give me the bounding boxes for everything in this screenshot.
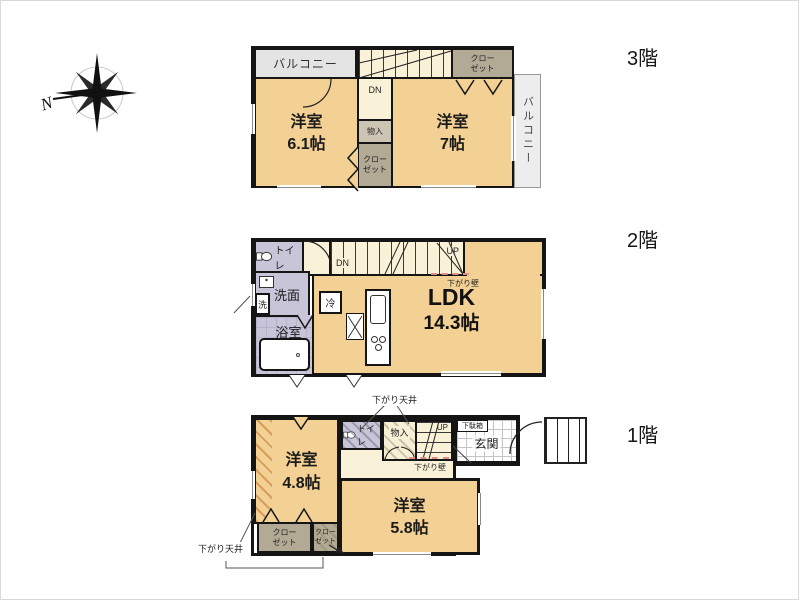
kitchen-prep-table: [346, 313, 364, 340]
window: [250, 284, 255, 306]
bathtub-drain: [296, 353, 300, 357]
kitchen-stove: [370, 336, 386, 351]
toilet-1f-label: トイレ: [357, 422, 380, 448]
window: [421, 185, 476, 190]
floor-title-1f: 1階: [627, 419, 658, 448]
closet-3f-topright: クロー ゼット: [451, 48, 514, 80]
closet-3f-mid: クロー ゼット: [357, 142, 393, 188]
closet-1f-left: クロー ゼット: [257, 522, 312, 553]
kitchen-sink: [370, 295, 386, 324]
floor-title-3f: 3階: [627, 42, 658, 71]
drop-wall-line-1f: [409, 457, 449, 459]
entrance-steps: [544, 417, 587, 464]
drop-ceiling-top-label: 下がり天井: [371, 393, 418, 406]
floor-title-2f: 2階: [627, 224, 658, 253]
drop-wall-2f-label: 下がり壁: [447, 278, 479, 289]
storage-1f-label: 物入: [389, 426, 409, 439]
kitchen-counter-2f: [365, 289, 391, 366]
compass-rose: N: [39, 49, 139, 141]
closet-1f-left-label: クロー ゼット: [273, 528, 297, 548]
drop-wall-1f-label: 下がり壁: [413, 462, 447, 473]
washing-machine-2f: 洗: [255, 293, 270, 315]
washroom-2f-label: 洗面: [274, 285, 300, 304]
closet-1f-right: クロー ゼット: [312, 522, 339, 553]
window: [277, 185, 321, 190]
shoe-cabinet-1f: 下駄箱: [457, 420, 488, 432]
toilet-icon: [256, 250, 273, 263]
toilet-1f: トイレ: [341, 420, 382, 450]
balcony-3f-top: バルコニー: [254, 48, 357, 79]
entrance-1f-label: 玄関: [472, 435, 500, 452]
balcony-3f-right-label: バルコニー: [520, 96, 536, 166]
cross-symbol: [348, 316, 362, 338]
room-3f-left-name: 洋室: [290, 111, 322, 136]
window: [478, 493, 483, 525]
balcony-3f-right: バルコニー: [514, 74, 541, 188]
washing-machine-label: 洗: [258, 298, 267, 311]
toilet-2f-label: トイレ: [275, 242, 303, 272]
sink-icon: [259, 276, 274, 288]
ldk-2f-size: 14.3帖: [394, 312, 509, 336]
storage-3f: 物入: [357, 119, 393, 144]
toilet-2f: トイレ: [254, 240, 304, 273]
storage-1f: 物入: [382, 420, 417, 461]
drop-wall-line-2f: [431, 273, 469, 275]
window: [511, 116, 516, 161]
closet-3f-mid-label: クロー ゼット: [363, 155, 387, 175]
room-3f-left-size: 6.1帖: [287, 135, 325, 154]
room-3f-right-name: 洋室: [436, 111, 468, 136]
room-3f-western-7: 洋室 7帖: [391, 77, 514, 188]
room-1f-left-size: 4.8帖: [282, 474, 320, 493]
balcony-3f-top-label: バルコニー: [273, 55, 338, 72]
hall-3f: DN: [357, 77, 393, 121]
window: [541, 289, 546, 339]
room-1f-main-size: 5.8帖: [390, 519, 428, 538]
stairs-3f-dn-label: DN: [369, 85, 382, 95]
stairs-2f-up-label: UP: [444, 246, 461, 256]
sloped-ceiling-hatch: [256, 420, 272, 522]
refrigerator-label: 冷: [326, 295, 336, 310]
drop-ceiling-left-label: 下がり天井: [197, 542, 244, 555]
compass-north-letter: N: [39, 92, 56, 114]
floor-plan-canvas: N 3階 2階 1階 バルコニー クロー ゼット 洋室 6.1帖 DN 物入 ク…: [0, 0, 799, 600]
window: [250, 104, 255, 134]
stairs-2f-dn-label: DN: [334, 258, 351, 268]
bathtub: [259, 338, 310, 371]
stairs-1f-up-label: UP: [436, 423, 449, 432]
window: [373, 552, 431, 557]
shoe-cabinet-label: 下駄箱: [462, 421, 483, 431]
stairs-3f: [357, 48, 454, 80]
window: [250, 471, 255, 499]
stairs-2f: DN UP: [329, 240, 466, 276]
ldk-2f-label-group: LDK 14.3帖: [394, 283, 509, 336]
room-3f-right-size: 7帖: [440, 135, 465, 154]
closet-3f-topright-label: クロー ゼット: [471, 54, 495, 74]
room-1f-main-name: 洋室: [393, 495, 425, 520]
room-1f-left-name: 洋室: [285, 449, 317, 474]
room-1f-western-4-8: 洋室 4.8帖: [254, 418, 339, 524]
room-3f-western-6-1: 洋室 6.1帖: [254, 77, 359, 188]
stairs-1f: UP: [415, 420, 453, 461]
window: [441, 371, 501, 376]
closet-1f-right-label: クロー ゼット: [315, 529, 336, 547]
storage-3f-label: 物入: [367, 127, 383, 137]
room-1f-western-5-8: 洋室 5.8帖: [339, 478, 480, 555]
refrigerator-2f: 冷: [319, 291, 342, 314]
